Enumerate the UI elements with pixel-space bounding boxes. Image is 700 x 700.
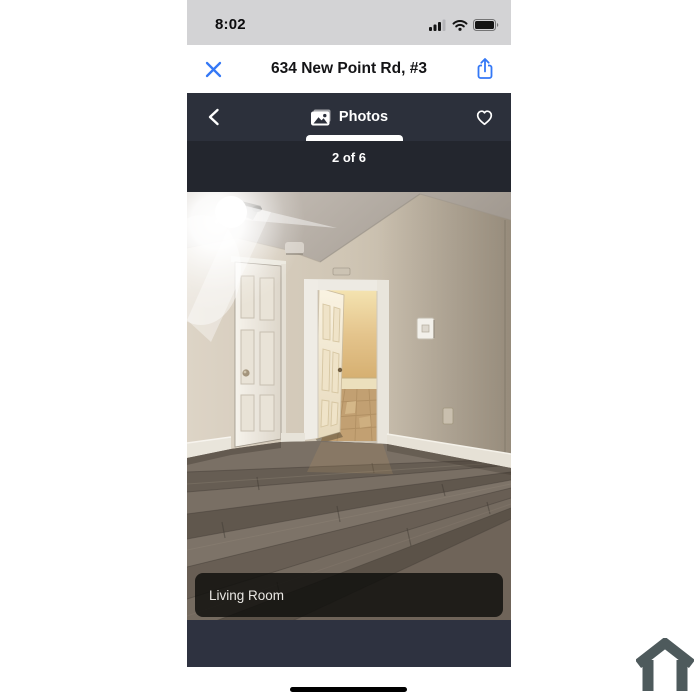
status-bar: 8:02 xyxy=(187,0,511,45)
status-icons xyxy=(429,19,499,31)
page: 8:02 xyxy=(0,0,700,700)
photo-caption: Living Room xyxy=(195,573,503,617)
tab-photos[interactable]: Photos xyxy=(187,109,511,126)
listing-title: 634 New Point Rd, #3 xyxy=(187,60,511,78)
back-button[interactable] xyxy=(201,104,227,130)
tab-photos-label: Photos xyxy=(339,109,388,125)
listing-photo[interactable]: Living Room xyxy=(187,192,511,620)
battery-icon xyxy=(473,19,499,31)
cellular-signal-icon xyxy=(429,19,447,31)
photo-nav-bar: Photos xyxy=(187,93,511,141)
wifi-icon xyxy=(452,19,468,31)
chevron-left-icon xyxy=(205,107,223,127)
share-button[interactable] xyxy=(472,56,498,82)
ios-share-icon xyxy=(475,57,495,81)
living-room-photo xyxy=(187,192,511,620)
house-outline-icon xyxy=(636,638,694,693)
clock: 8:02 xyxy=(215,16,246,33)
home-indicator-bar[interactable] xyxy=(290,687,407,692)
photo-counter: 2 of 6 xyxy=(187,141,511,192)
photo-viewer-background xyxy=(187,620,511,667)
photo-caption-label: Living Room xyxy=(209,588,284,603)
listing-header: 634 New Point Rd, #3 xyxy=(187,45,511,93)
close-button[interactable] xyxy=(200,56,226,82)
x-icon xyxy=(204,60,223,79)
heart-outline-icon xyxy=(474,107,495,127)
photos-icon xyxy=(310,109,332,126)
favorite-button[interactable] xyxy=(471,104,497,130)
phone-screen: 8:02 xyxy=(187,0,511,667)
